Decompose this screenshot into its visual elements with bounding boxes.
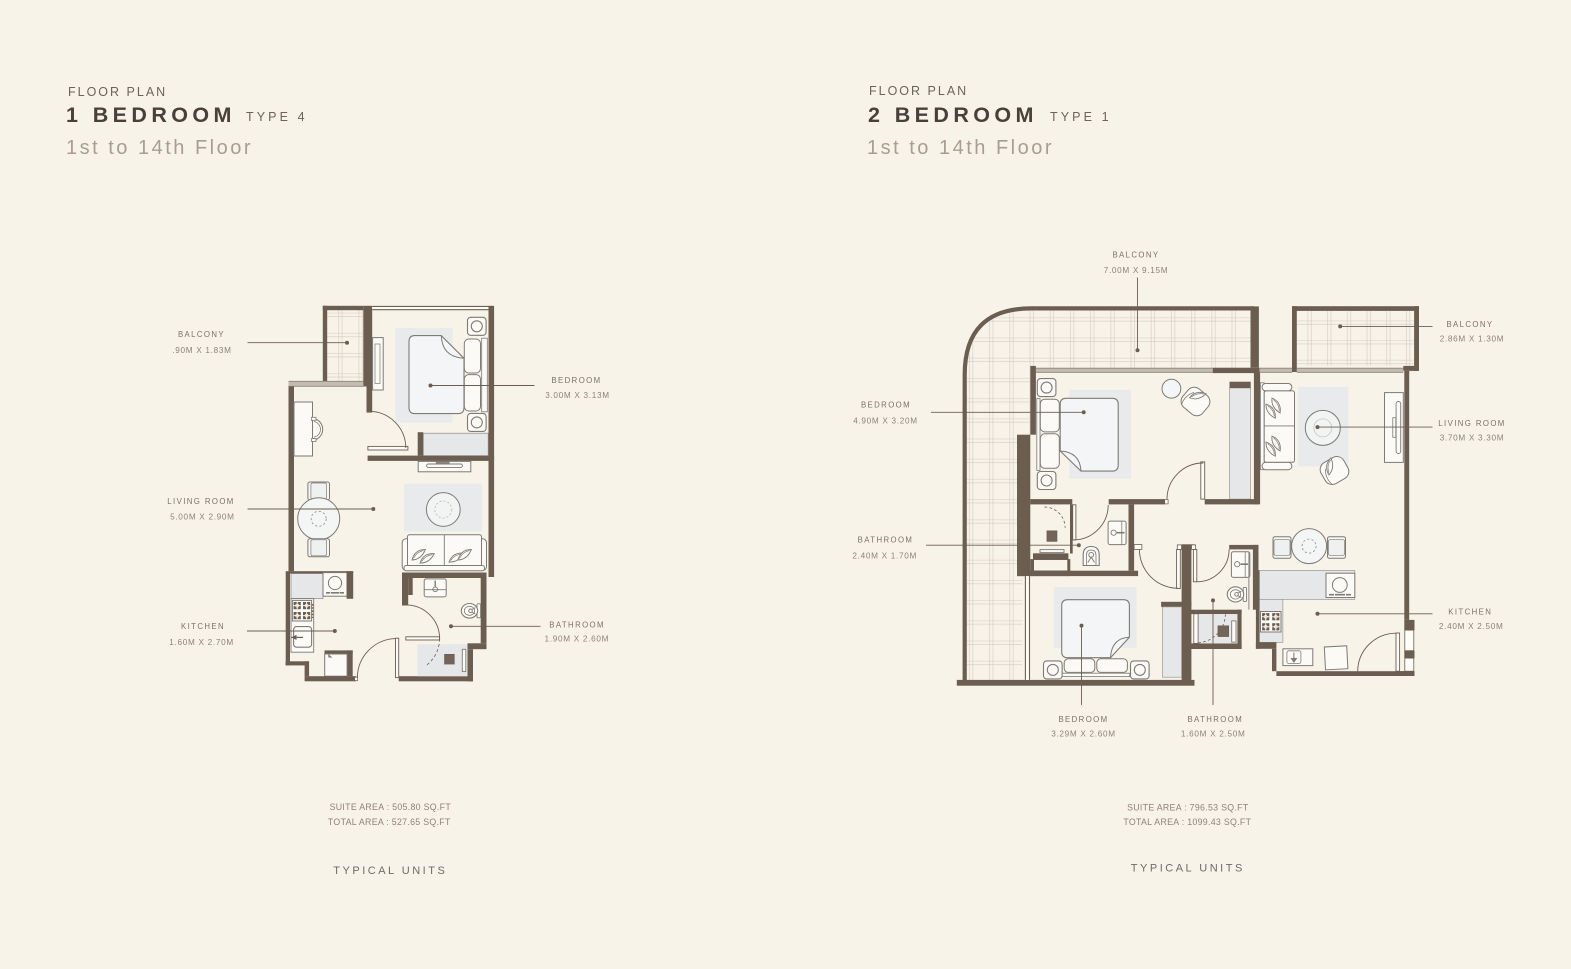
- svg-text:TYPE 1: TYPE 1: [1050, 110, 1112, 124]
- svg-text:5.00M X 2.90M: 5.00M X 2.90M: [170, 513, 235, 522]
- svg-text:FLOOR PLAN: FLOOR PLAN: [68, 85, 167, 99]
- svg-text:SUITE AREA : 505.80 SQ.FT: SUITE AREA : 505.80 SQ.FT: [330, 802, 452, 812]
- svg-text:3.29M X 2.60M: 3.29M X 2.60M: [1051, 730, 1116, 739]
- svg-text:BATHROOM: BATHROOM: [858, 536, 914, 545]
- svg-text:LIVING ROOM: LIVING ROOM: [167, 497, 234, 506]
- svg-text:TYPICAL UNITS: TYPICAL UNITS: [333, 865, 447, 877]
- svg-text:.90M X 1.83M: .90M X 1.83M: [172, 346, 231, 355]
- svg-text:BATHROOM: BATHROOM: [549, 621, 605, 630]
- svg-text:1.60M X 2.50M: 1.60M X 2.50M: [1181, 730, 1246, 739]
- svg-text:BALCONY: BALCONY: [1446, 320, 1493, 329]
- svg-text:TYPE 4: TYPE 4: [246, 110, 308, 124]
- svg-text:BEDROOM: BEDROOM: [861, 401, 911, 410]
- svg-text:BEDROOM: BEDROOM: [1058, 715, 1108, 724]
- svg-text:LIVING ROOM: LIVING ROOM: [1438, 419, 1505, 428]
- svg-text:1.90M X 2.60M: 1.90M X 2.60M: [544, 635, 609, 644]
- svg-text:BATHROOM: BATHROOM: [1187, 715, 1243, 724]
- svg-text:3.00M X 3.13M: 3.00M X 3.13M: [545, 391, 610, 400]
- svg-text:KITCHEN: KITCHEN: [181, 622, 225, 631]
- svg-text:TOTAL AREA : 527.65 SQ.FT: TOTAL AREA : 527.65 SQ.FT: [328, 817, 451, 827]
- svg-text:1 BEDROOM: 1 BEDROOM: [66, 103, 236, 127]
- svg-text:BALCONY: BALCONY: [1112, 251, 1159, 260]
- svg-text:FLOOR PLAN: FLOOR PLAN: [869, 84, 968, 98]
- svg-text:TYPICAL UNITS: TYPICAL UNITS: [1131, 863, 1245, 875]
- svg-text:7.00M X 9.15M: 7.00M X 9.15M: [1104, 266, 1169, 275]
- svg-text:BEDROOM: BEDROOM: [551, 376, 601, 385]
- svg-text:1.60M X 2.70M: 1.60M X 2.70M: [169, 638, 234, 647]
- svg-text:BALCONY: BALCONY: [178, 330, 225, 339]
- svg-text:TOTAL AREA : 1099.43 SQ.FT: TOTAL AREA : 1099.43 SQ.FT: [1123, 817, 1251, 827]
- svg-text:1st to 14th Floor: 1st to 14th Floor: [867, 137, 1054, 159]
- svg-text:SUITE AREA : 796.53 SQ.FT: SUITE AREA : 796.53 SQ.FT: [1127, 803, 1249, 813]
- svg-text:2.86M X 1.30M: 2.86M X 1.30M: [1440, 335, 1505, 344]
- svg-text:2 BEDROOM: 2 BEDROOM: [868, 103, 1038, 127]
- svg-text:3.70M X 3.30M: 3.70M X 3.30M: [1440, 434, 1505, 443]
- svg-text:1st to 14th Floor: 1st to 14th Floor: [66, 137, 253, 159]
- svg-text:KITCHEN: KITCHEN: [1448, 608, 1492, 617]
- svg-text:4.90M X 3.20M: 4.90M X 3.20M: [853, 417, 918, 426]
- svg-text:2.40M X 1.70M: 2.40M X 1.70M: [852, 552, 917, 561]
- svg-text:2.40M X 2.50M: 2.40M X 2.50M: [1439, 622, 1504, 631]
